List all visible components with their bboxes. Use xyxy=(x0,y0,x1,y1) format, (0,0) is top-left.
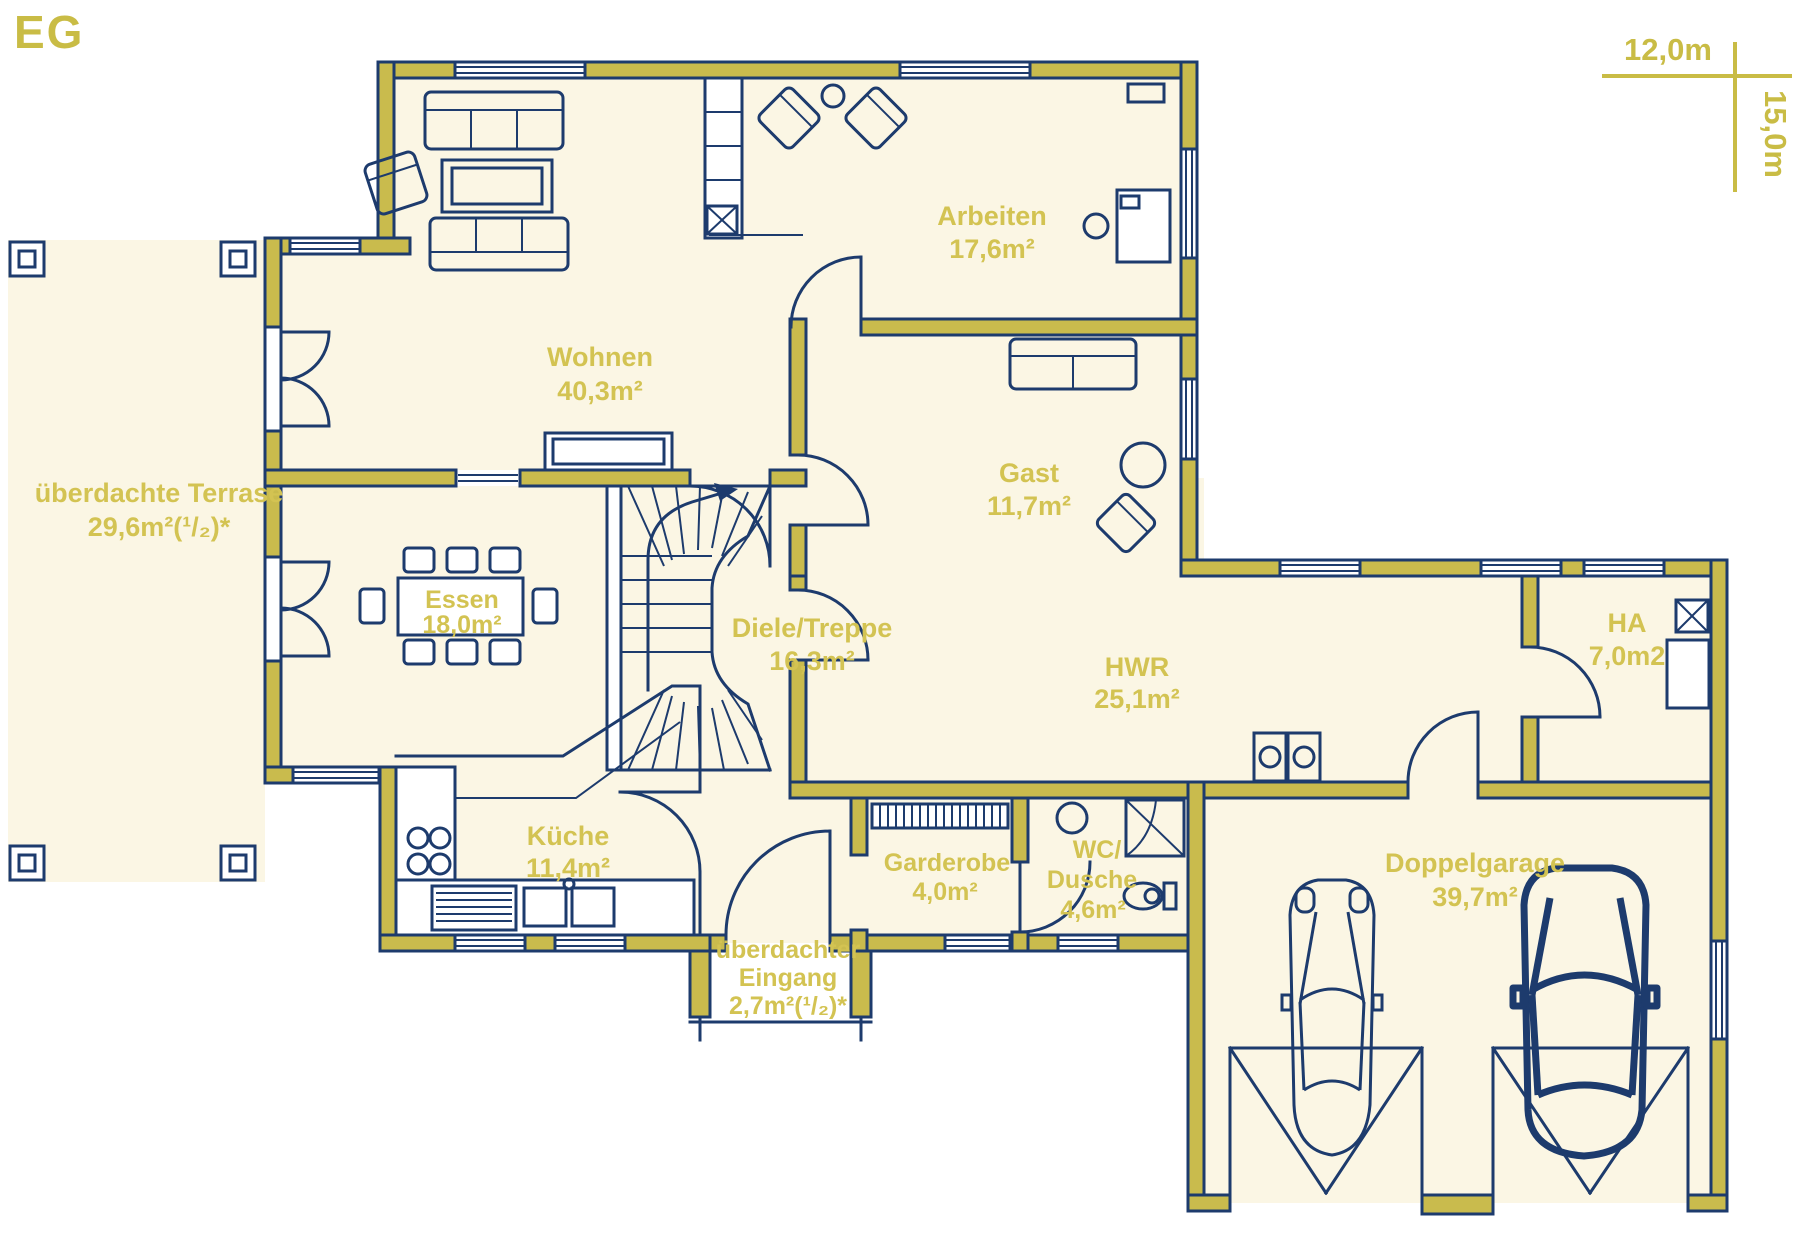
room-label-garage: Doppelgarage xyxy=(1385,848,1565,878)
terrace-post xyxy=(10,242,44,276)
window xyxy=(1058,935,1118,951)
window xyxy=(455,935,525,951)
window xyxy=(1711,941,1727,1039)
floor-plan-canvas: EG 12,0m 15,0m überdachte Terrase 29,6m²… xyxy=(0,0,1800,1248)
room-area-terrasse: 29,6m²(¹/₂)* xyxy=(88,512,231,542)
window xyxy=(900,62,1030,78)
window xyxy=(1181,379,1197,459)
window xyxy=(293,767,379,783)
terrace xyxy=(8,240,265,882)
room-area-garage: 39,7m² xyxy=(1432,882,1518,912)
room-area-essen: 18,0m² xyxy=(422,611,501,639)
window xyxy=(555,935,625,951)
room-label-wohnen: Wohnen xyxy=(547,342,653,372)
room-area-kueche: 11,4m² xyxy=(526,853,610,883)
garderobe-fixtures xyxy=(872,804,1008,828)
terrace-post xyxy=(221,242,255,276)
shaft-icon xyxy=(707,206,737,234)
window xyxy=(1280,560,1360,576)
room-label-hwr: HWR xyxy=(1105,652,1169,682)
scale-width-label: 12,0m xyxy=(1624,32,1712,67)
plan-title: EG xyxy=(14,6,84,58)
entrance-porch xyxy=(690,1017,871,1040)
terrace-post xyxy=(221,846,255,880)
room-area-hwr: 25,1m² xyxy=(1094,684,1180,714)
room-label-diele: Diele/Treppe xyxy=(732,613,893,643)
window xyxy=(1181,149,1197,258)
room-label-wc-2: Dusche xyxy=(1047,866,1137,894)
room-label-arbeiten: Arbeiten xyxy=(937,201,1047,231)
window xyxy=(455,62,585,78)
window xyxy=(945,935,1010,951)
window xyxy=(1481,560,1561,576)
room-area-ha: 7,0m2 xyxy=(1589,641,1666,671)
room-area-wohnen: 40,3m² xyxy=(557,376,643,406)
scale-height-label: 15,0m xyxy=(1758,90,1793,178)
room-label-eingang-2: Eingang xyxy=(739,964,838,992)
room-area-wc: 4,6m² xyxy=(1060,896,1125,924)
room-area-gast: 11,7m² xyxy=(987,491,1071,521)
room-label-gast: Gast xyxy=(999,458,1059,488)
window xyxy=(290,238,360,254)
sideboard xyxy=(545,433,672,470)
window xyxy=(1584,560,1664,576)
floorplan-page: EG 12,0m 15,0m überdachte Terrase 29,6m²… xyxy=(0,0,1800,1248)
room-area-eingang: 2,7m²(¹/₂)* xyxy=(729,992,847,1020)
cased-opening xyxy=(456,470,520,486)
room-label-wc-1: WC/ xyxy=(1073,836,1122,864)
terrace-post xyxy=(10,846,44,880)
room-label-essen: Essen xyxy=(425,586,499,614)
room-label-garderobe: Garderobe xyxy=(884,849,1011,877)
room-label-ha: HA xyxy=(1608,608,1647,638)
shaft-icon xyxy=(1676,600,1708,632)
room-area-arbeiten: 17,6m² xyxy=(949,234,1035,264)
room-label-terrasse: überdachte Terrase xyxy=(35,478,284,508)
room-label-kueche: Küche xyxy=(527,821,610,851)
room-area-garderobe: 4,0m² xyxy=(912,878,977,906)
scale-marker: 12,0m 15,0m xyxy=(1602,32,1793,192)
room-label-eingang-1: überdachter xyxy=(716,936,861,964)
room-area-diele: 16,3m² xyxy=(769,646,855,676)
